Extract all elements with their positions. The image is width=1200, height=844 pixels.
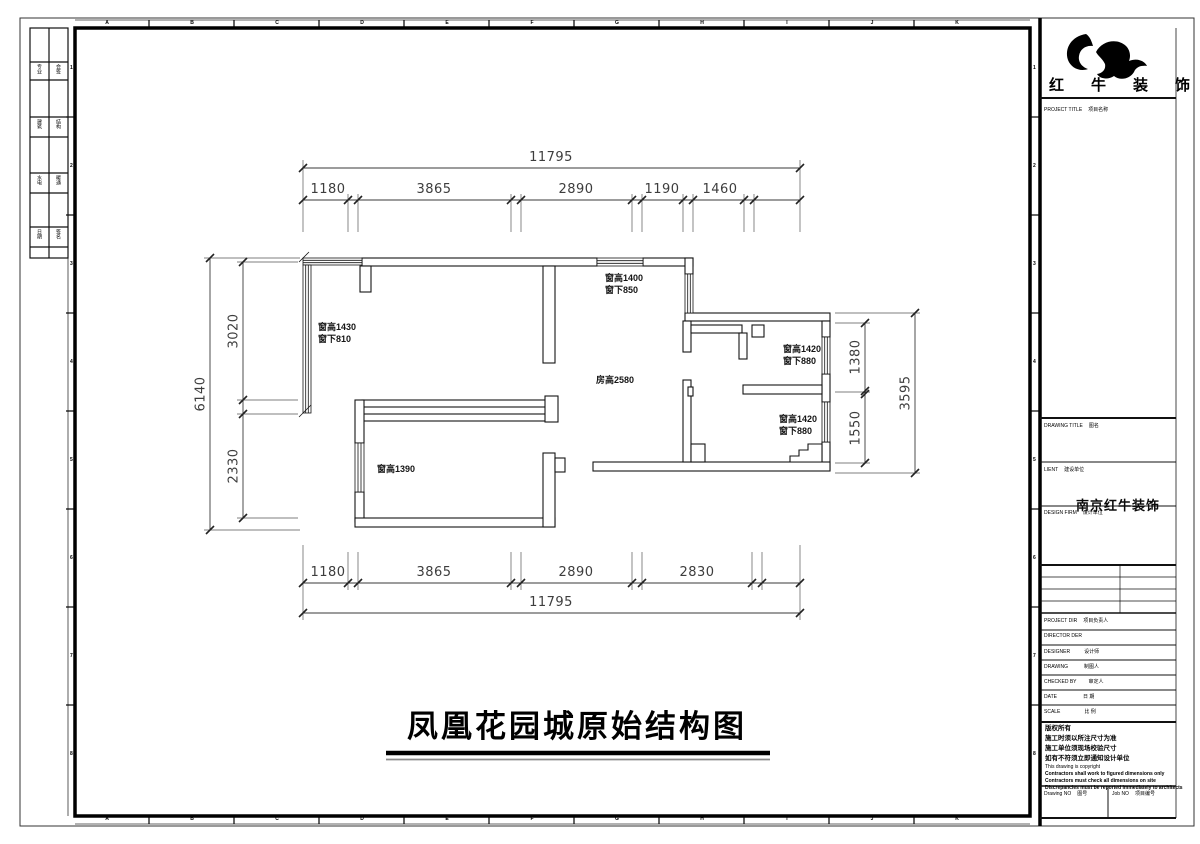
grid-letter-bottom-j: J [871, 816, 874, 822]
stairs-steps [790, 444, 822, 462]
dim-bottom-total: 11795 [529, 595, 573, 610]
grid-letter-top-i: I [786, 20, 787, 26]
grid-letter-top-c: C [275, 20, 279, 26]
field-label-zh: 项目负责人 [1083, 618, 1108, 624]
field-label-zh: 建设单位 [1064, 467, 1084, 473]
signature-cell: 结构 [55, 119, 62, 129]
window-label-line: 窗下880 [783, 355, 821, 367]
grid-letter-bottom-f: F [530, 816, 533, 822]
note-line: Contractors must check all dimensions on… [1045, 778, 1173, 785]
grid-letter-bottom-h: H [700, 816, 704, 822]
field-drawing-title: DRAWING TITLE图名 [1044, 422, 1099, 429]
grid-number-right-7: 7 [1033, 653, 1036, 659]
dim-top-seg-1190: 1190 [644, 182, 679, 197]
dim-top-total: 11795 [529, 150, 573, 165]
company-name: 红牛装饰 [1049, 74, 1200, 95]
field-label-en: SCALE [1044, 709, 1060, 715]
dim-bottom-seg-3865: 3865 [416, 565, 451, 580]
grid-number-left-1: 1 [70, 65, 73, 71]
dim-top-seg-1460: 1460 [702, 182, 737, 197]
field-label-zh: 制图人 [1084, 664, 1099, 670]
field-label-en: PROJECT DIR [1044, 618, 1077, 624]
field-label-zh: 项目名称 [1088, 107, 1108, 113]
field-label-en: LIENT [1044, 467, 1058, 473]
window-label-right-2: 窗高1420 窗下880 [779, 413, 817, 437]
window-label-line: 窗高1420 [783, 343, 821, 355]
grid-letter-bottom-k: K [955, 816, 959, 822]
main-title-underline [386, 753, 770, 760]
signature-cell: 水电 [36, 175, 43, 185]
field-label-zh: 设计师 [1084, 649, 1099, 655]
grid-number-right-6: 6 [1033, 555, 1036, 561]
window-label-line: 窗下850 [605, 284, 643, 296]
grid-number-left-2: 2 [70, 163, 73, 169]
signature-bar-grid [30, 28, 68, 258]
grid-letter-top-k: K [955, 20, 959, 26]
field-label-zh: 设计单位 [1083, 510, 1103, 516]
signature-cell: 签名 [55, 229, 62, 239]
signature-cell: 专业 [36, 64, 43, 74]
field-project-title: PROJECT TITLE项目名称 [1044, 106, 1108, 113]
window-label-left-top: 窗高1430 窗下810 [318, 321, 356, 345]
field-label-zh: 比 例 [1084, 709, 1095, 715]
grid-letter-top-f: F [530, 20, 533, 26]
signature-cell: 会签 [55, 64, 62, 74]
field-client: LIENT建设单位 [1044, 466, 1084, 473]
grid-number-right-1: 1 [1033, 65, 1036, 71]
field-label-en: DESIGN FIRM [1044, 510, 1077, 516]
dim-right-total: 3595 [899, 375, 914, 410]
grid-number-right-3: 3 [1033, 261, 1036, 267]
field-label-zh: 项目编号 [1135, 791, 1155, 797]
dim-top-seg-3865: 3865 [416, 182, 451, 197]
signature-cell: 暖通 [55, 175, 62, 185]
note-line: 施工单位须现场校验尺寸 [1045, 744, 1173, 754]
dim-bottom-seg-2830: 2830 [679, 565, 714, 580]
grid-letter-bottom-d: D [360, 816, 364, 822]
field-label-zh: 图名 [1089, 423, 1099, 429]
grid-letter-top-g: G [615, 20, 619, 26]
field-design-firm: DESIGN FIRM设计单位 [1044, 509, 1103, 516]
field-label-zh: 图号 [1077, 791, 1087, 797]
field-label-en: PROJECT TITLE [1044, 107, 1082, 113]
signature-cell: 建筑 [36, 119, 43, 129]
field-label-en: Drawing NO [1044, 791, 1071, 797]
grid-number-left-5: 5 [70, 457, 73, 463]
field-scale: SCALE比 例 [1044, 708, 1096, 715]
field-job-no: Job NO项目编号 [1112, 790, 1155, 797]
floor-plan-windows [299, 252, 830, 492]
window-label-line: 窗高1400 [605, 272, 643, 284]
dim-left-seg-2330: 2330 [227, 448, 242, 483]
grid-letter-top-d: D [360, 20, 364, 26]
note-line: 施工时须以所注尺寸为准 [1045, 734, 1173, 744]
grid-letter-bottom-a: A [105, 816, 109, 822]
floor-plan-walls [355, 258, 830, 527]
note-line: 如有不符须立即通知设计单位 [1045, 754, 1173, 764]
grid-letter-bottom-e: E [445, 816, 448, 822]
window-label-line: 窗高1430 [318, 321, 356, 333]
field-project-dir: PROJECT DIR项目负责人 [1044, 617, 1108, 624]
grid-number-left-6: 6 [70, 555, 73, 561]
window-label-left-bottom: 窗高1390 [377, 463, 415, 475]
drawing-sheet: A B C D E F G H I J K A B C D E F G H I … [0, 0, 1200, 844]
grid-number-left-8: 8 [70, 751, 73, 757]
grid-number-right-4: 4 [1033, 359, 1036, 365]
grid-number-left-4: 4 [70, 359, 73, 365]
field-label-en: Job NO [1112, 791, 1129, 797]
window-label-line: 窗下810 [318, 333, 356, 345]
dim-right-seg-1550: 1550 [849, 410, 864, 445]
window-label-line: 窗高1390 [377, 463, 415, 475]
field-label-en: CHECKED BY [1044, 679, 1077, 685]
window-label-line: 窗高1420 [779, 413, 817, 425]
dim-bottom-seg-2890: 2890 [558, 565, 593, 580]
field-director: DIRECTOR DER [1044, 633, 1088, 639]
field-date: DATE日 期 [1044, 693, 1094, 700]
field-label-en: DESIGNER [1044, 649, 1070, 655]
grid-letter-top-j: J [871, 20, 874, 26]
dim-bottom-seg-1180: 1180 [310, 565, 345, 580]
dim-top-seg-1180: 1180 [310, 182, 345, 197]
field-drawing-no: Drawing NO图号 [1044, 790, 1087, 797]
note-line: 版权所有 [1045, 724, 1173, 734]
field-label-en: DRAWING TITLE [1044, 423, 1083, 429]
dim-left-seg-3020: 3020 [227, 313, 242, 348]
grid-number-left-3: 3 [70, 261, 73, 267]
field-label-en: DIRECTOR DER [1044, 633, 1082, 639]
note-line: This drawing is copyright [1045, 764, 1173, 771]
grid-number-right-5: 5 [1033, 457, 1036, 463]
dim-right-seg-1380: 1380 [849, 339, 864, 374]
window-label-right-1: 窗高1420 窗下880 [783, 343, 821, 367]
grid-letter-bottom-i: I [786, 816, 787, 822]
field-label-zh: 日 期 [1083, 694, 1094, 700]
field-drawing: DRAWING制图人 [1044, 663, 1099, 670]
grid-letter-top-b: B [190, 20, 194, 26]
room-height-text: 房高2580 [596, 374, 634, 386]
grid-letter-bottom-b: B [190, 816, 194, 822]
redbull-logo-icon [1067, 34, 1147, 79]
field-designer: DESIGNER设计师 [1044, 648, 1099, 655]
main-title: 凤凰花园城原始结构图 [407, 701, 747, 746]
grid-letter-bottom-g: G [615, 816, 619, 822]
room-height-label: 房高2580 [596, 374, 634, 386]
window-label-top: 窗高1400 窗下850 [605, 272, 643, 296]
field-label-en: DRAWING [1044, 664, 1068, 670]
field-checked-by: CHECKED BY审定人 [1044, 678, 1104, 685]
grid-letter-top-a: A [105, 20, 109, 26]
grid-number-left-7: 7 [70, 653, 73, 659]
window-label-line: 窗下880 [779, 425, 817, 437]
copyright-notes: 版权所有 施工时须以所注尺寸为准 施工单位须现场校验尺寸 如有不符须立即通知设计… [1045, 724, 1173, 792]
dim-left-total: 6140 [194, 376, 209, 411]
grid-number-right-8: 8 [1033, 751, 1036, 757]
note-line: Contractors shall work to figured dimens… [1045, 771, 1173, 778]
grid-letter-bottom-c: C [275, 816, 279, 822]
grid-letter-top-e: E [445, 20, 448, 26]
signature-cell: 日期 [36, 229, 43, 239]
grid-letter-top-h: H [700, 20, 704, 26]
dim-top-seg-2890: 2890 [558, 182, 593, 197]
field-label-en: DATE [1044, 694, 1057, 700]
field-label-zh: 审定人 [1089, 679, 1104, 685]
grid-number-right-2: 2 [1033, 163, 1036, 169]
